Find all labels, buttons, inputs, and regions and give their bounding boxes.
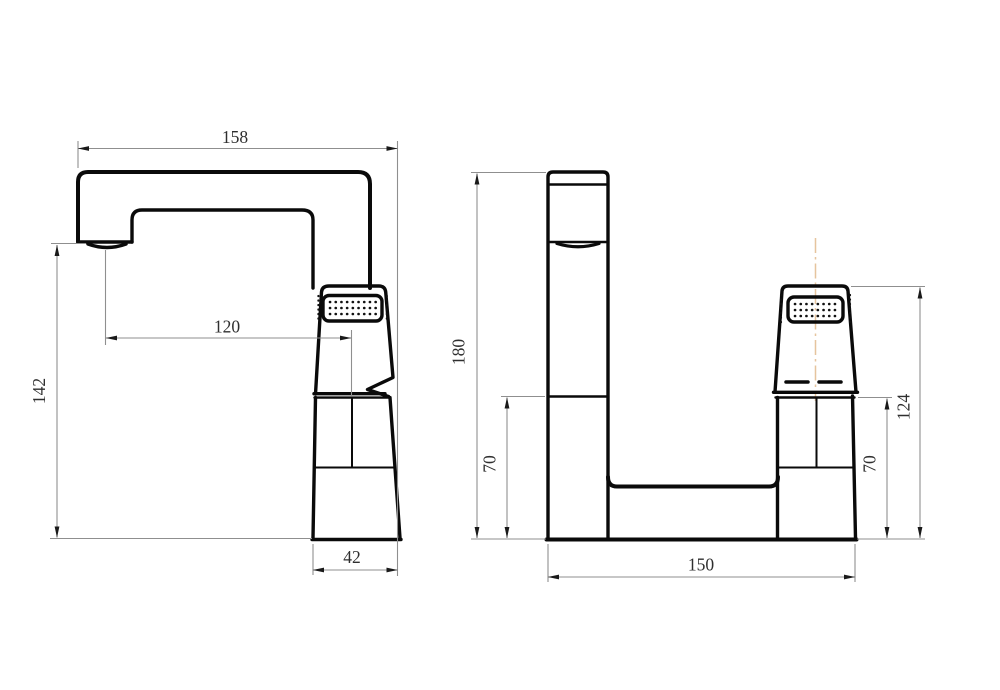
- spout-outer-contour: [78, 172, 370, 288]
- dim-spout-height-142: 142: [29, 378, 49, 404]
- faucet-technical-drawing: 158 120 142 42: [0, 0, 1000, 690]
- dim-deck-height-70-right: 70: [860, 455, 880, 473]
- handle-knurl-dots-front: [795, 304, 838, 316]
- aerator-outlet: [88, 244, 126, 248]
- dim-spout-offset-120: 120: [214, 317, 241, 337]
- aerator-outlet-front: [557, 244, 599, 247]
- drawing-canvas: 158 120 142 42: [0, 0, 1000, 690]
- handle-knurl-dots-side: [330, 302, 377, 314]
- side-view-dimensions: 158 120 142 42: [29, 127, 398, 576]
- dim-body-width-42: 42: [343, 547, 361, 567]
- base-inner-deck: [608, 477, 778, 487]
- spout-column-outline: [548, 172, 608, 539]
- dim-handle-height-124: 124: [894, 394, 914, 421]
- dim-base-width-150: 150: [688, 555, 715, 575]
- spout-inner-contour: [132, 210, 313, 288]
- dim-spout-reach-158: 158: [222, 127, 249, 147]
- dim-overall-height-180: 180: [449, 339, 469, 366]
- dim-deck-height-70-left: 70: [480, 455, 500, 473]
- front-view: 180 70 150 70 124: [449, 172, 926, 582]
- side-view: 158 120 142 42: [29, 127, 401, 576]
